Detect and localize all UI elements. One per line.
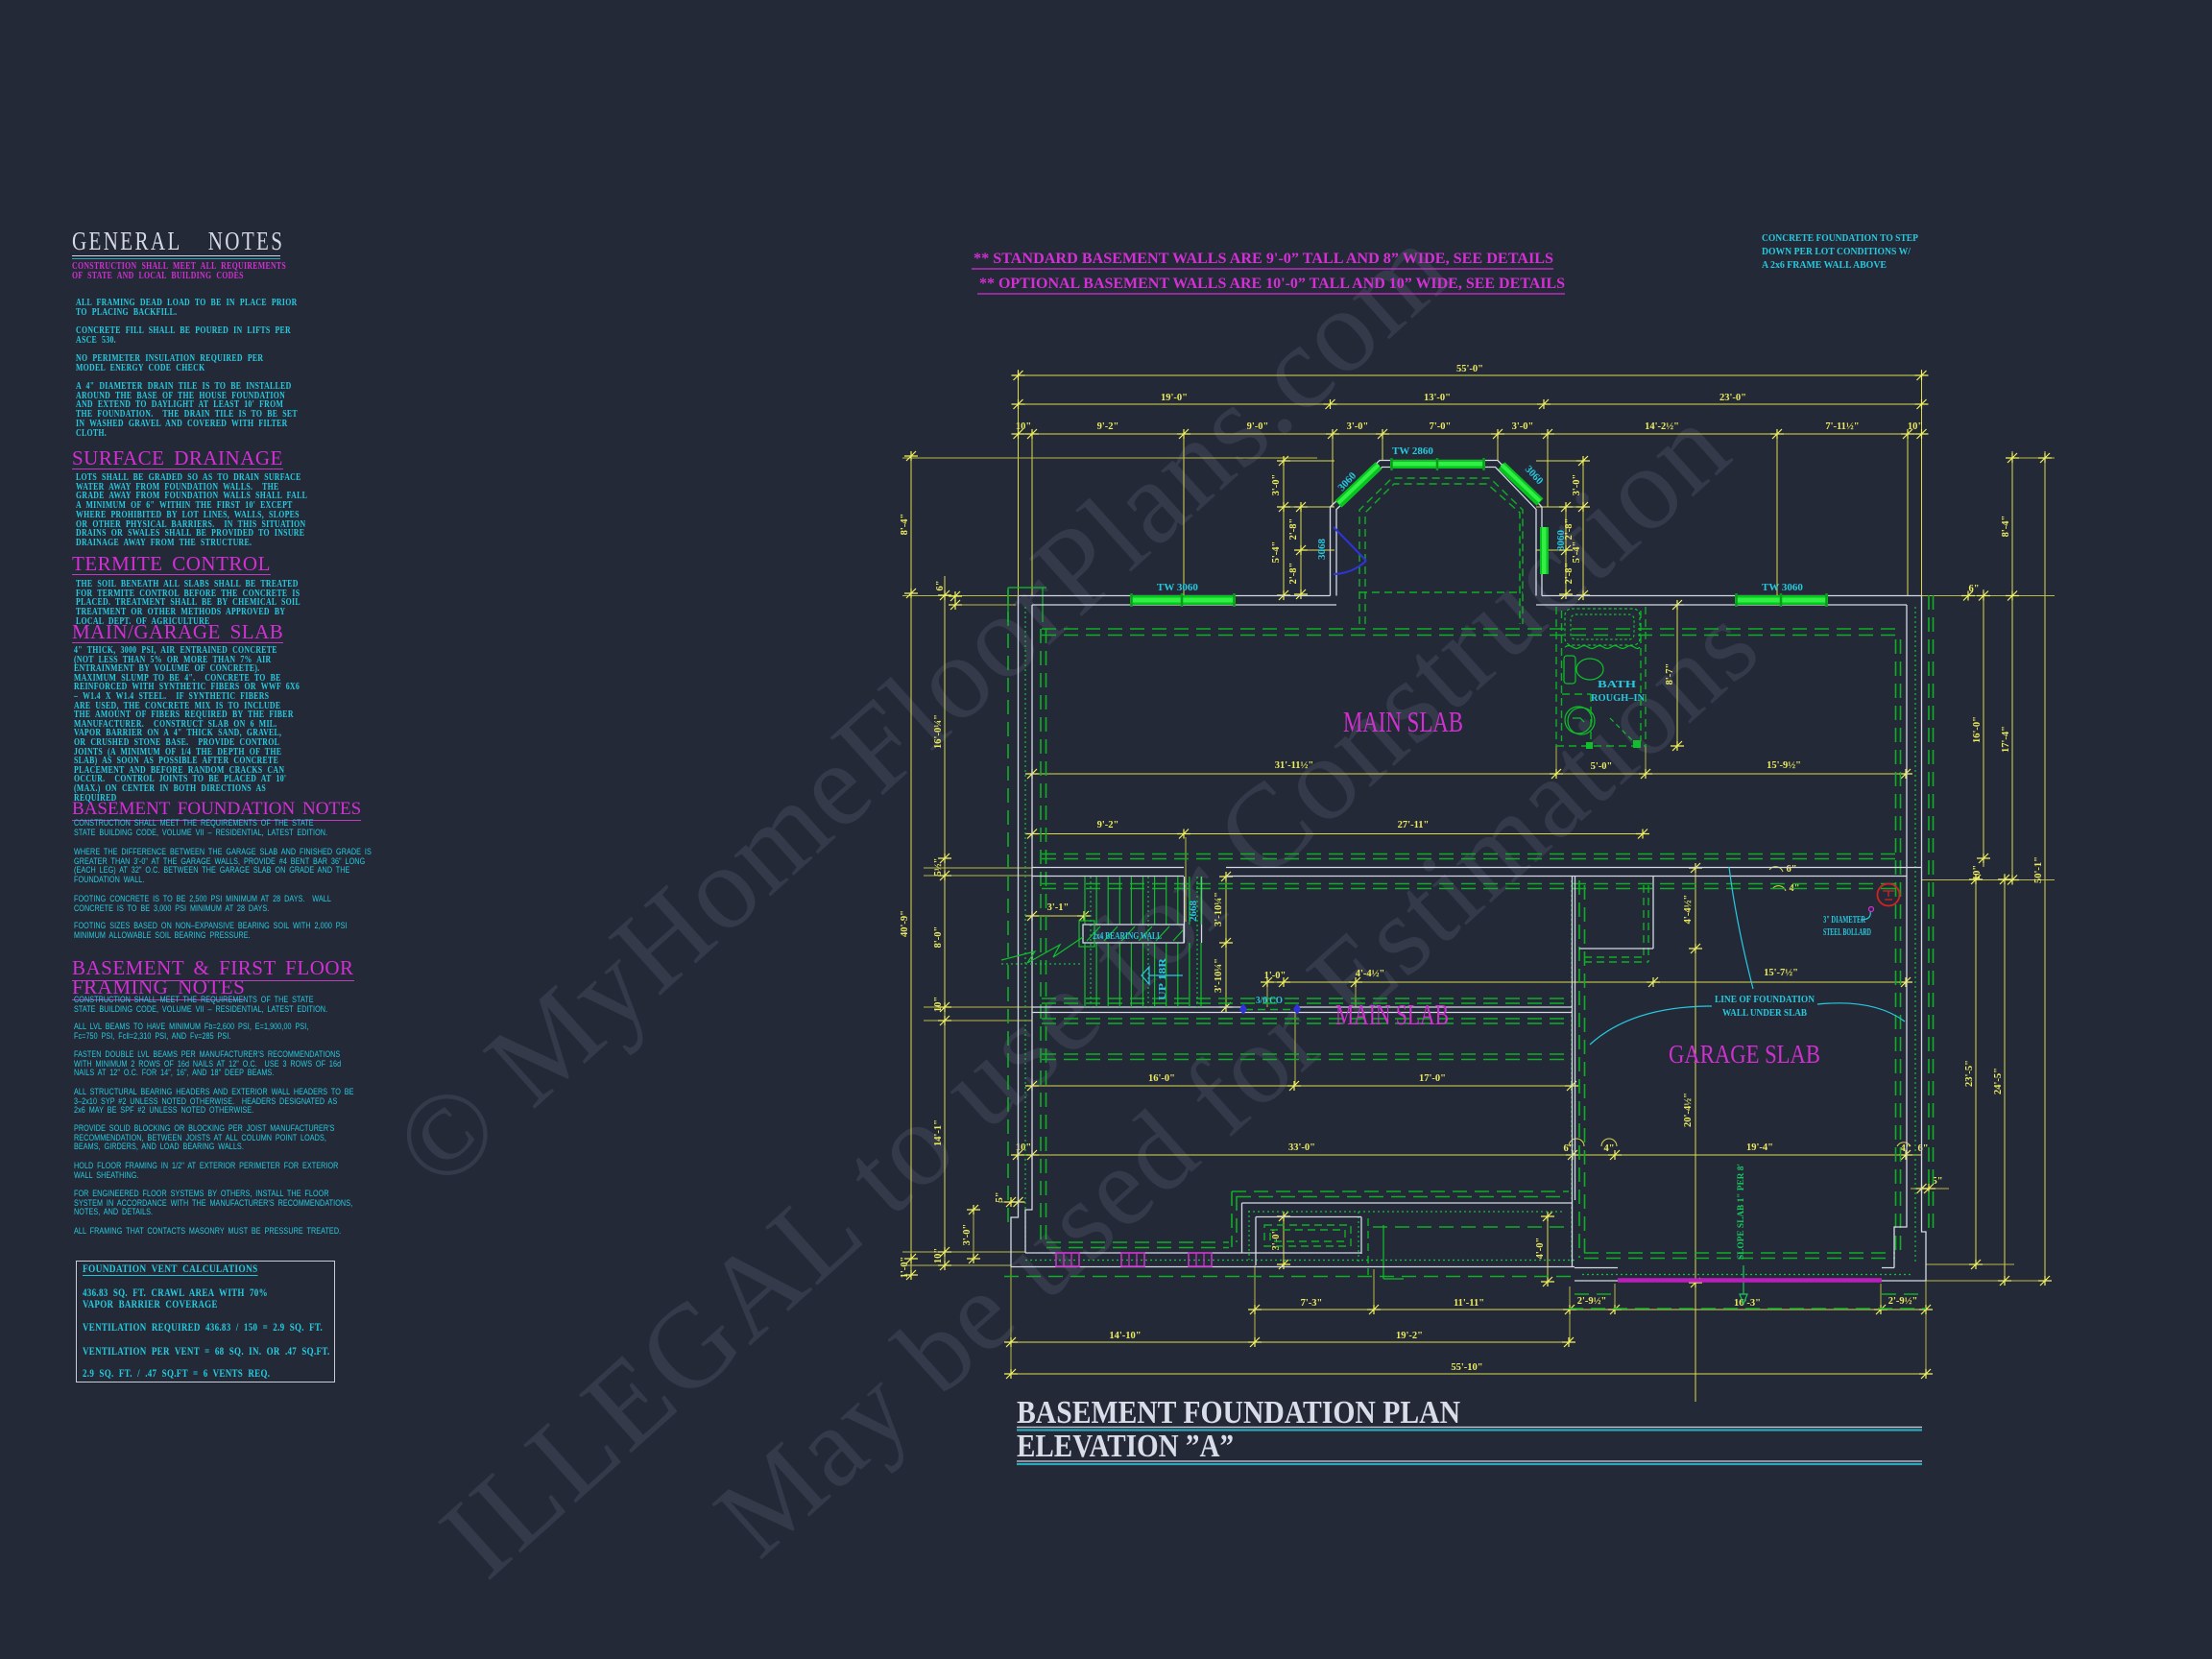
svg-text:ELEVATION ”A”: ELEVATION ”A” xyxy=(1017,1429,1234,1464)
svg-text:33'-0": 33'-0" xyxy=(1288,1142,1315,1153)
svg-text:4'-4½": 4'-4½" xyxy=(1683,895,1694,925)
svg-text:19'-4": 19'-4" xyxy=(1746,1142,1773,1153)
svg-text:16'-0": 16'-0" xyxy=(1148,1073,1175,1084)
svg-text:16'-0": 16'-0" xyxy=(1972,716,1983,743)
svg-text:3'-0": 3'-0" xyxy=(1572,474,1582,496)
svg-text:TW 3060: TW 3060 xyxy=(1762,582,1803,593)
svg-text:2'-9½": 2'-9½" xyxy=(1888,1296,1918,1307)
svg-text:4": 4" xyxy=(1603,1143,1614,1154)
svg-text:14'-2½": 14'-2½" xyxy=(1645,421,1679,432)
svg-text:5'-4": 5'-4" xyxy=(1271,541,1282,564)
svg-text:9'-0": 9'-0" xyxy=(1247,421,1269,432)
svg-text:TW 3060: TW 3060 xyxy=(1157,582,1198,593)
svg-text:DOWN PER LOT CONDITIONS W/: DOWN PER LOT CONDITIONS W/ xyxy=(1762,246,1911,257)
svg-text:3'-0": 3'-0" xyxy=(1271,474,1282,496)
svg-text:3'-0": 3'-0" xyxy=(962,1224,973,1246)
svg-text:10": 10" xyxy=(1908,421,1923,432)
svg-text:MAIN SLAB: MAIN SLAB xyxy=(1343,705,1463,738)
svg-text:8'-7": 8'-7" xyxy=(1665,663,1675,685)
svg-text:19'-2": 19'-2" xyxy=(1396,1331,1423,1341)
svg-text:8'-0": 8'-0" xyxy=(933,926,944,949)
svg-text:TW 2860: TW 2860 xyxy=(1392,445,1433,457)
svg-text:31'-11½": 31'-11½" xyxy=(1275,760,1314,771)
svg-text:24'-5": 24'-5" xyxy=(1993,1068,2004,1094)
svg-text:55'-10": 55'-10" xyxy=(1451,1362,1482,1373)
svg-text:5": 5" xyxy=(995,1191,1005,1202)
svg-text:ROUGH–IN: ROUGH–IN xyxy=(1591,692,1645,704)
svg-text:23'-5": 23'-5" xyxy=(1964,1060,1975,1087)
svg-text:27'-11": 27'-11" xyxy=(1398,820,1430,830)
svg-text:4'-0": 4'-0" xyxy=(1535,1238,1546,1260)
svg-text:6": 6" xyxy=(1968,584,1979,594)
svg-text:2'-8": 2'-8" xyxy=(1288,563,1299,585)
svg-text:10": 10" xyxy=(933,1248,944,1263)
svg-text:40'-9": 40'-9" xyxy=(900,910,910,937)
svg-text:2'-8": 2'-8" xyxy=(1564,563,1575,585)
svg-text:9'-2": 9'-2" xyxy=(1097,421,1119,432)
svg-text:15'-9½": 15'-9½" xyxy=(1767,760,1801,771)
svg-text:6": 6" xyxy=(1786,864,1796,875)
svg-text:16'-3": 16'-3" xyxy=(1734,1298,1761,1309)
svg-text:3'-0": 3'-0" xyxy=(1271,1229,1282,1251)
svg-text:9'-2": 9'-2" xyxy=(1097,820,1119,830)
svg-text:13'-0": 13'-0" xyxy=(1424,393,1451,403)
svg-text:3060: 3060 xyxy=(1555,530,1567,552)
svg-text:BASEMENT FOUNDATION PLAN: BASEMENT FOUNDATION PLAN xyxy=(1017,1395,1460,1431)
svg-text:7'-0": 7'-0" xyxy=(1430,421,1452,432)
svg-text:23'-0": 23'-0" xyxy=(1719,393,1746,403)
svg-text:5'-0": 5'-0" xyxy=(1591,761,1613,772)
svg-text:3'-1": 3'-1" xyxy=(1047,902,1070,913)
svg-text:3/0 CO: 3/0 CO xyxy=(1256,995,1283,1006)
svg-text:2'-9½": 2'-9½" xyxy=(1577,1296,1607,1307)
svg-text:16'-0¼": 16'-0¼" xyxy=(933,714,944,749)
svg-text:14'-1": 14'-1" xyxy=(933,1119,944,1146)
svg-text:UP 18R: UP 18R xyxy=(1157,957,1168,1000)
svg-text:5'-4": 5'-4" xyxy=(1572,541,1582,564)
svg-text:17'-4": 17'-4" xyxy=(2001,726,2011,753)
svg-text:LINE OF FOUNDATION: LINE OF FOUNDATION xyxy=(1715,994,1815,1005)
svg-text:3" DIAMETER: 3" DIAMETER xyxy=(1823,914,1866,926)
svg-text:BATH: BATH xyxy=(1598,679,1637,690)
svg-text:SLOPE SLAB 1" PER 8': SLOPE SLAB 1" PER 8' xyxy=(1737,1164,1746,1260)
svg-text:20'-4½": 20'-4½" xyxy=(1683,1093,1694,1127)
svg-text:8'-4": 8'-4" xyxy=(900,514,910,536)
svg-text:8'-4": 8'-4" xyxy=(2001,516,2011,538)
svg-text:2x4 BEARING WALL: 2x4 BEARING WALL xyxy=(1093,930,1162,942)
svg-text:3'-0": 3'-0" xyxy=(1347,421,1369,432)
svg-text:2668: 2668 xyxy=(1188,901,1199,923)
svg-text:MAIN SLAB: MAIN SLAB xyxy=(1335,998,1449,1031)
svg-text:6": 6" xyxy=(1917,1143,1928,1154)
svg-text:CONCRETE FOUNDATION TO STEP: CONCRETE FOUNDATION TO STEP xyxy=(1762,232,1918,244)
svg-text:WALL UNDER SLAB: WALL UNDER SLAB xyxy=(1722,1007,1808,1019)
svg-text:2'-8": 2'-8" xyxy=(1288,518,1299,541)
svg-text:7'-11½": 7'-11½" xyxy=(1825,421,1859,432)
svg-text:6": 6" xyxy=(935,580,946,590)
svg-text:** OPTIONAL BASEMENT WALLS ARE: ** OPTIONAL BASEMENT WALLS ARE 10'-0” TA… xyxy=(979,276,1565,292)
svg-text:55'-0": 55'-0" xyxy=(1456,364,1483,374)
svg-text:11'-11": 11'-11" xyxy=(1454,1298,1484,1309)
svg-text:17'-0": 17'-0" xyxy=(1419,1073,1446,1084)
svg-text:3'-0": 3'-0" xyxy=(1512,421,1534,432)
svg-text:** STANDARD BASEMENT WALLS ARE: ** STANDARD BASEMENT WALLS ARE 9'-0” TAL… xyxy=(974,251,1553,267)
svg-text:GARAGE SLAB: GARAGE SLAB xyxy=(1669,1040,1820,1069)
svg-text:3'-10¼": 3'-10¼" xyxy=(1214,958,1224,993)
svg-text:3068: 3068 xyxy=(1316,539,1328,561)
svg-text:7'-3": 7'-3" xyxy=(1301,1298,1323,1309)
svg-text:3'-10¼": 3'-10¼" xyxy=(1214,892,1224,926)
svg-text:STEEL BOLLARD: STEEL BOLLARD xyxy=(1823,926,1871,938)
svg-text:15'-7½": 15'-7½" xyxy=(1764,968,1798,978)
svg-text:14'-10": 14'-10" xyxy=(1109,1331,1141,1341)
svg-text:A 2x6 FRAME WALL ABOVE: A 2x6 FRAME WALL ABOVE xyxy=(1762,259,1887,271)
svg-text:19'-0": 19'-0" xyxy=(1161,393,1188,403)
svg-text:50'-1": 50'-1" xyxy=(2033,856,2044,883)
